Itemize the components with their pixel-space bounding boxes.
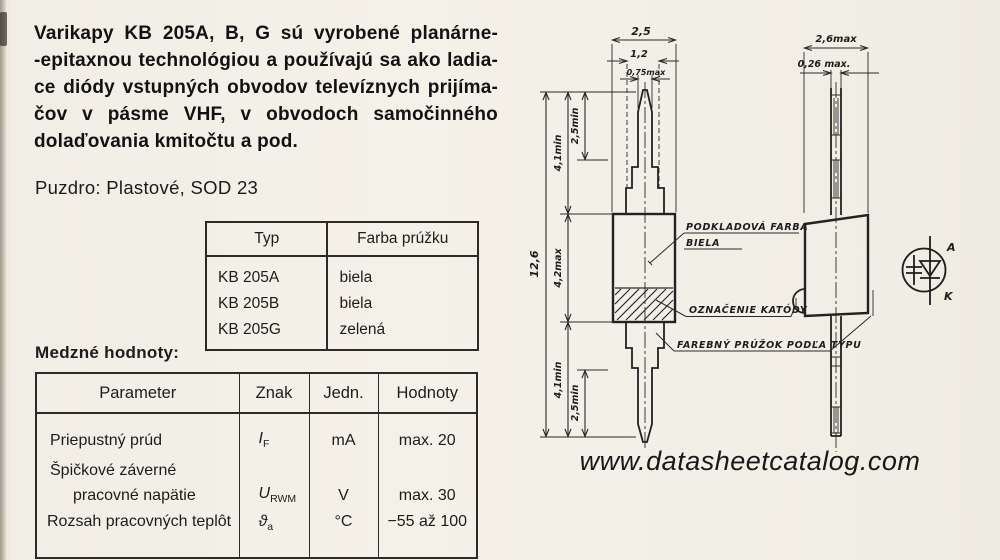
symbol-subscript: RWM [270, 493, 296, 505]
value-cell: max. 30 [378, 482, 477, 507]
symbol-circle [903, 249, 946, 292]
intro-line: Varikapy KB 205A, B, G sú vyrobené planá… [34, 20, 498, 47]
symbol-cell: URWM [239, 482, 309, 507]
table-header-row: Parameter Znak Jedn. Hodnoty [36, 373, 477, 413]
varicap-symbol: A K [903, 236, 956, 305]
dim-length-total: 12,6 [528, 250, 541, 277]
intro-line: ce diódy vstupných obvodov televíznych p… [34, 74, 498, 101]
limits-table: Parameter Znak Jedn. Hodnoty Priepustný … [35, 372, 478, 559]
table-header-row: Typ Farba prúžku [206, 222, 478, 256]
scan-edge-shadow [0, 0, 7, 560]
symbol-letter: U [259, 485, 271, 502]
dim-body-length: 4,2max [553, 248, 564, 289]
dim-lead-top: 4,1min [553, 134, 564, 172]
cathode-mark-label: OZNAČENIE KATÓDY [689, 304, 808, 316]
parameter-cell: Špičkové záverné [36, 455, 239, 482]
capacitor-element [906, 255, 922, 285]
type-cell: KB 205G [206, 317, 327, 350]
column-header-hodnoty: Hodnoty [378, 373, 477, 413]
intro-line: -epitaxnou technológiou a používajú sa a… [34, 47, 498, 74]
dim-width-top: 2,5 [631, 25, 651, 38]
scan-artifact [0, 12, 7, 46]
table-row: KB 205A biela [206, 256, 478, 291]
type-cell: KB 205B [206, 291, 327, 317]
limits-title: Medzné hodnoty: [35, 343, 179, 363]
value-cell: max. 20 [378, 413, 477, 455]
type-color-table: Typ Farba prúžku KB 205A biela KB 205B b… [205, 221, 479, 351]
table-row: KB 205B biela [206, 291, 478, 317]
package-body [805, 215, 868, 316]
column-header-farba: Farba prúžku [327, 222, 478, 256]
side-view: 2,6max 0,26 max. [793, 34, 879, 452]
package-type-line: Puzdro: Plastové, SOD 23 [35, 177, 258, 199]
dim-lead-thickness: 0,26 max. [798, 59, 851, 70]
intro-line: dolaďovania kmitočtu a pod. [34, 128, 498, 155]
cathode-label: K [944, 290, 954, 303]
anode-label: A [946, 241, 956, 254]
front-view: 2,5 1,2 0,75max 12,6 4,1min 2,5min 4,2ma… [528, 25, 679, 448]
table-row: KB 205G zelená [206, 317, 478, 350]
symbol-cell: IF [239, 413, 309, 455]
parameter-cell: Priepustný prúd [36, 413, 239, 455]
symbol-cell: ϑa [239, 507, 309, 558]
type-cell: KB 205A [206, 256, 327, 291]
intro-line: čov v pásme VHF, v obvodoch samočinného [34, 101, 498, 128]
base-color-label-2: BIELA [686, 238, 720, 249]
dim-tip-bottom: 2,5min [570, 384, 581, 421]
dim-body-width: 2,6max [815, 34, 857, 45]
dim-lead-bottom: 4,1min [553, 361, 564, 399]
arrowheads [543, 93, 588, 437]
value-cell: −55 až 100 [378, 507, 477, 558]
color-stripe-label: FAREBNÝ PRÚŽOK PODĽA TYPU [677, 339, 862, 351]
color-cell: zelená [327, 317, 478, 350]
symbol-letter: ϑ [259, 513, 268, 530]
base-color-label: PODKLADOVÁ FARBA [686, 221, 808, 233]
column-header-typ: Typ [206, 222, 327, 256]
color-cell: biela [327, 256, 478, 291]
table-row: Rozsah pracovných teplôt ϑa °C −55 až 10… [36, 507, 477, 558]
unit-cell: °C [309, 507, 378, 558]
datasheet-page: Varikapy KB 205A, B, G sú vyrobené planá… [0, 0, 1000, 560]
table-row: Špičkové záverné [36, 455, 477, 482]
column-header-jedn: Jedn. [309, 373, 378, 413]
annotations: PODKLADOVÁ FARBA BIELA OZNAČENIE KATÓDY … [648, 221, 871, 351]
dim-width-lead: 0,75max [627, 68, 666, 77]
column-header-parameter: Parameter [36, 373, 239, 413]
table-row: Priepustný prúd IF mA max. 20 [36, 413, 477, 455]
base-color-leader [648, 233, 684, 265]
unit-cell: V [309, 482, 378, 507]
symbol-subscript: a [267, 521, 273, 533]
color-cell: biela [327, 291, 478, 317]
unit-cell: mA [309, 413, 378, 455]
parameter-cell: Rozsah pracovných teplôt [36, 507, 239, 558]
dim-tip-top: 2,5min [570, 107, 581, 144]
table-row: pracovné napätie URWM V max. 30 [36, 482, 477, 507]
package-outline-drawing: 2,5 1,2 0,75max 12,6 4,1min 2,5min 4,2ma… [520, 0, 1000, 510]
website-watermark: www.datasheetcatalog.com [575, 446, 925, 477]
column-header-znak: Znak [239, 373, 309, 413]
dim-width-mid: 1,2 [630, 49, 648, 60]
parameter-cell: pracovné napätie [36, 482, 239, 507]
symbol-subscript: F [263, 438, 269, 450]
intro-paragraph: Varikapy KB 205A, B, G sú vyrobené planá… [34, 20, 498, 155]
